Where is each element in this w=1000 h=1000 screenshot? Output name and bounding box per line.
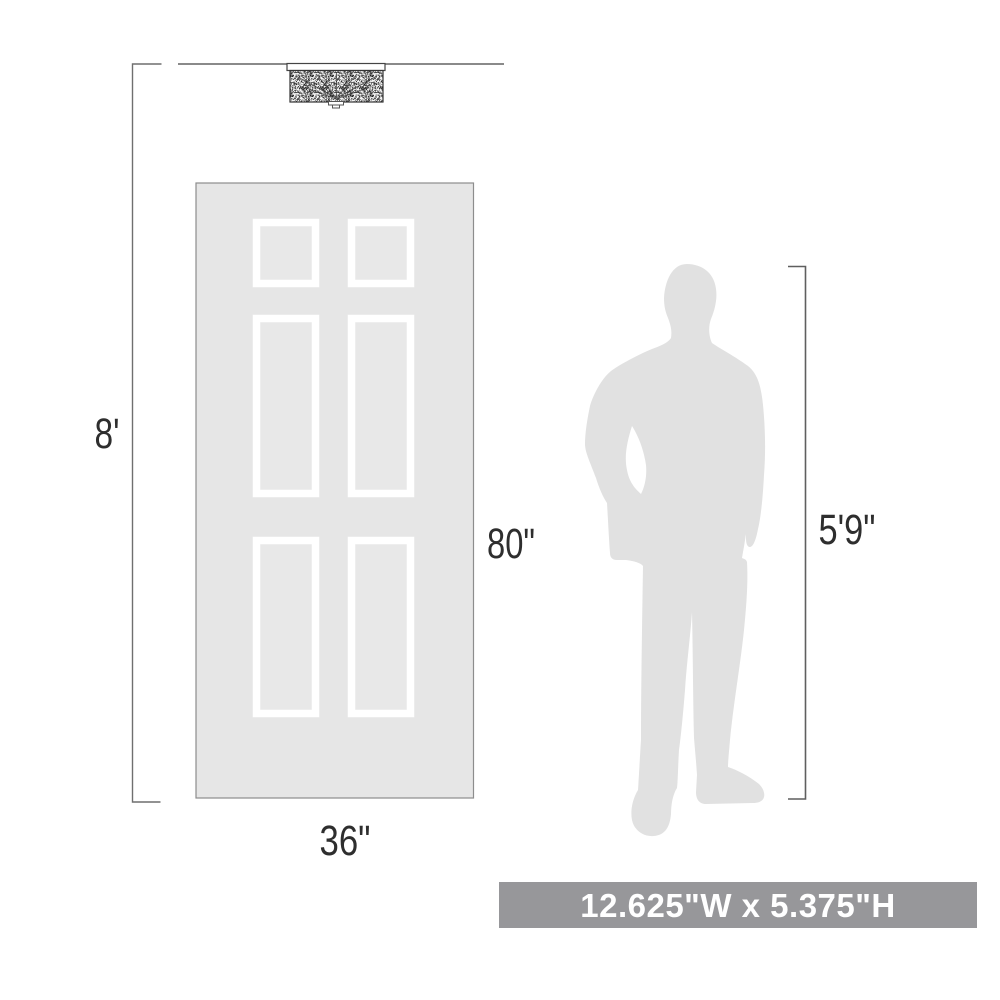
svg-text:36": 36": [320, 817, 371, 865]
svg-text:8': 8': [95, 410, 120, 458]
svg-text:80": 80": [487, 520, 535, 568]
svg-text:5'9": 5'9": [819, 506, 876, 554]
svg-text:12.625"W x 5.375"H: 12.625"W x 5.375"H: [580, 887, 895, 924]
